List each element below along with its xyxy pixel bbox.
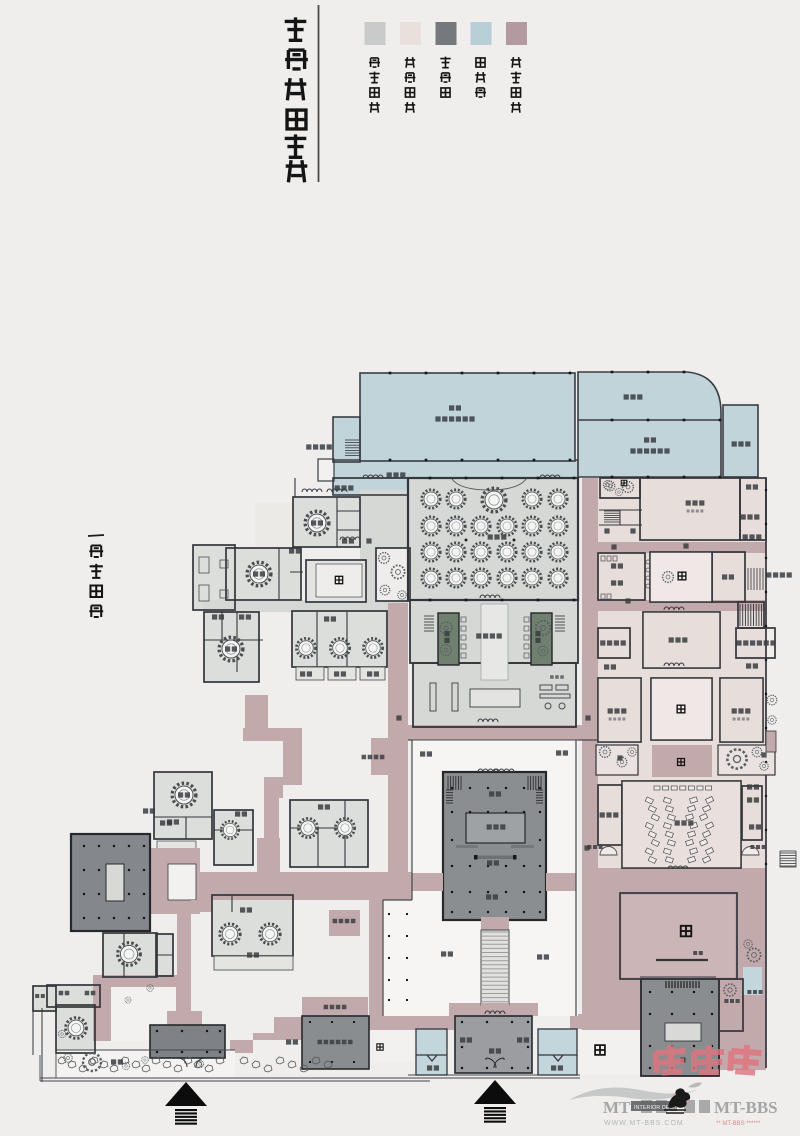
svg-text:MT-BBS: MT-BBS: [714, 1098, 778, 1117]
svg-text:WWW.MT-BBS.COM: WWW.MT-BBS.COM: [604, 1120, 684, 1127]
svg-text:MT: MT: [603, 1098, 631, 1117]
svg-text:** MT-BBS ******: ** MT-BBS ******: [716, 1121, 761, 1127]
